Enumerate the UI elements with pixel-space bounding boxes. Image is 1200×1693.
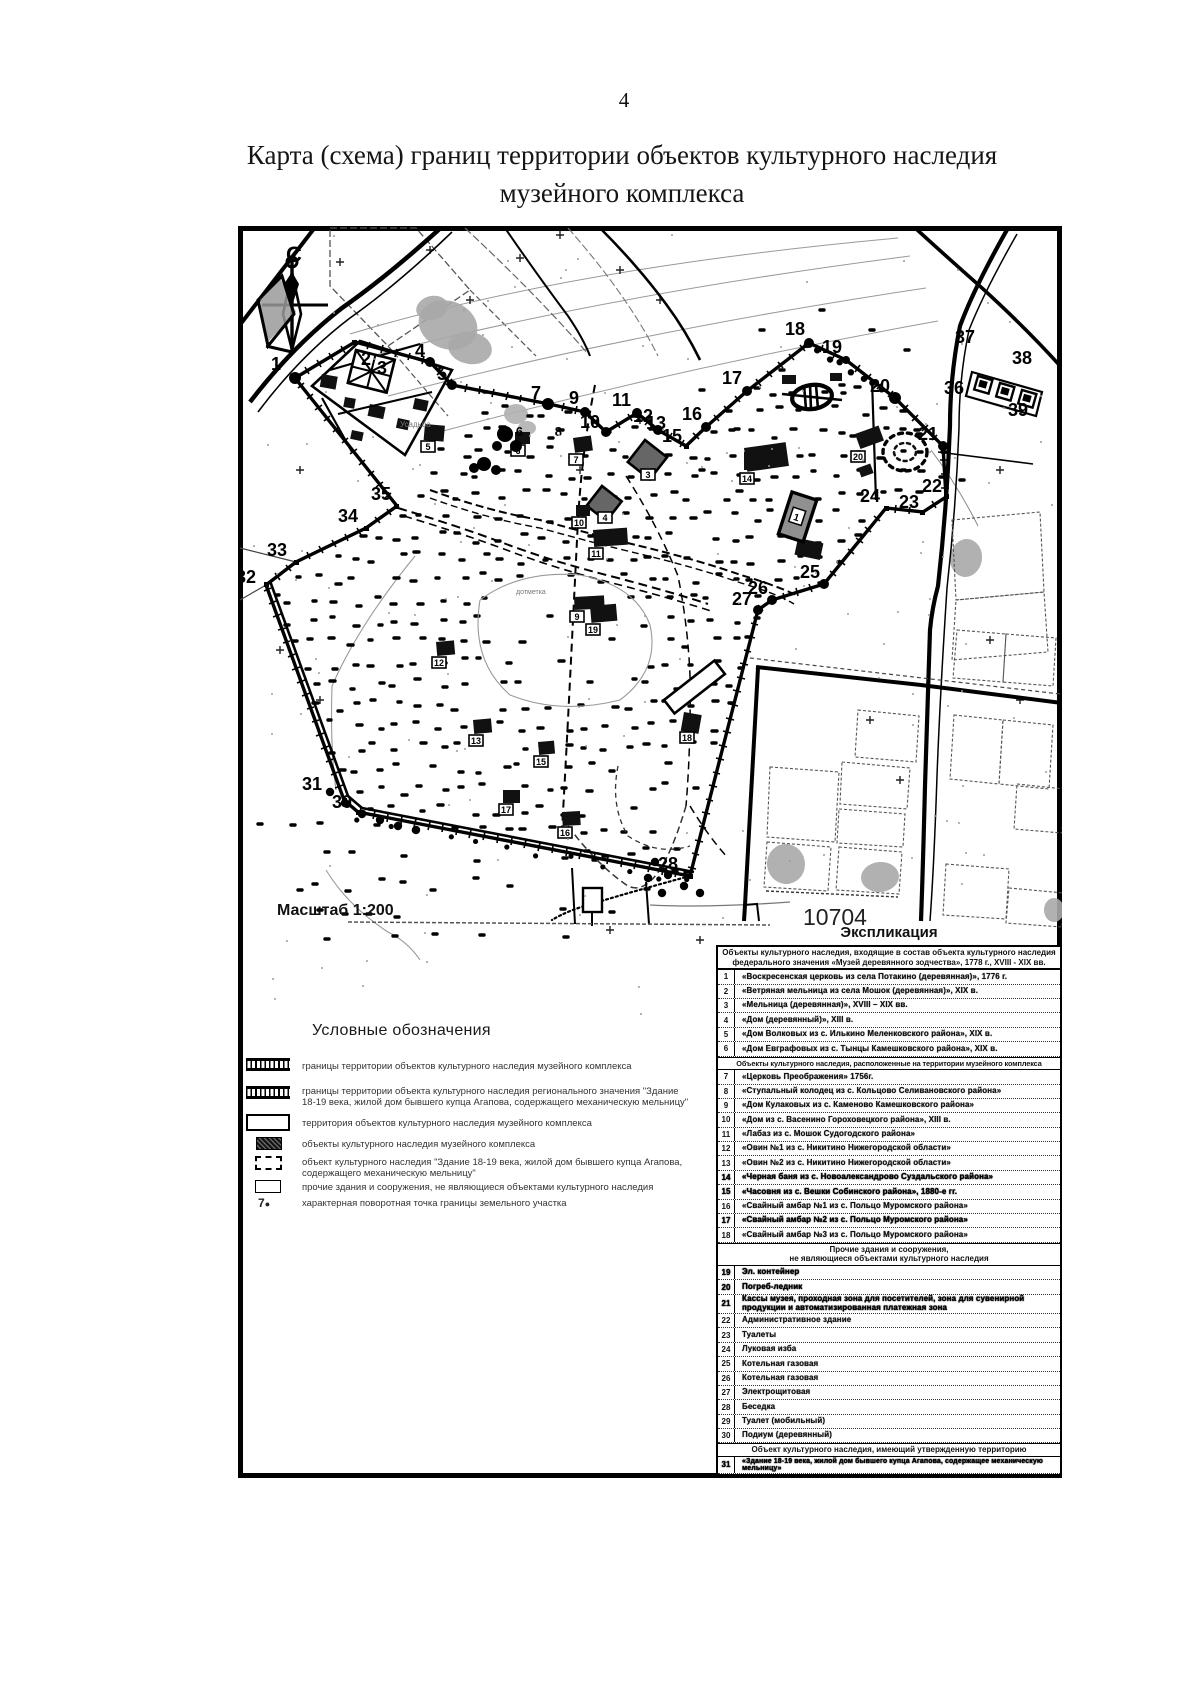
svg-text:16: 16 [560, 828, 570, 838]
svg-text:31: 31 [302, 774, 322, 794]
svg-text:28: 28 [658, 854, 678, 874]
svg-text:дотметка: дотметка [516, 589, 546, 596]
svg-text:16: 16 [682, 404, 702, 424]
svg-text:34: 34 [338, 506, 358, 526]
svg-text:35: 35 [371, 484, 391, 504]
svg-text:5: 5 [437, 364, 447, 384]
svg-text:1: 1 [271, 354, 281, 374]
svg-text:39: 39 [1008, 400, 1028, 420]
svg-text:25: 25 [800, 562, 820, 582]
svg-text:21: 21 [918, 424, 938, 444]
svg-text:32: 32 [238, 567, 256, 587]
svg-text:17: 17 [722, 368, 742, 388]
svg-text:4: 4 [602, 513, 607, 523]
svg-text:18: 18 [785, 319, 805, 339]
svg-text:5: 5 [425, 442, 430, 452]
svg-text:4: 4 [415, 341, 425, 361]
svg-text:19: 19 [822, 337, 842, 357]
svg-text:2: 2 [361, 349, 371, 369]
svg-text:3: 3 [645, 470, 650, 480]
svg-text:19: 19 [588, 625, 598, 635]
svg-text:10: 10 [580, 412, 600, 432]
svg-text:Масштаб 1:200: Масштаб 1:200 [277, 902, 394, 919]
svg-text:12: 12 [434, 658, 444, 668]
svg-text:9: 9 [574, 612, 579, 622]
svg-text:36: 36 [944, 378, 964, 398]
svg-text:18: 18 [682, 733, 692, 743]
svg-text:13: 13 [471, 736, 481, 746]
svg-text:Усадьба: Усадьба [400, 420, 431, 429]
svg-text:14: 14 [742, 474, 752, 484]
svg-text:17: 17 [501, 805, 511, 815]
svg-text:10: 10 [574, 518, 584, 528]
svg-text:23: 23 [899, 492, 919, 512]
svg-text:24: 24 [860, 486, 880, 506]
svg-text:15: 15 [662, 426, 682, 446]
svg-text:30: 30 [332, 792, 352, 812]
svg-text:22: 22 [922, 476, 942, 496]
svg-text:11: 11 [612, 390, 631, 410]
svg-text:20: 20 [853, 452, 863, 462]
svg-text:8: 8 [555, 424, 562, 439]
svg-text:6: 6 [516, 424, 523, 439]
svg-text:7: 7 [573, 455, 578, 465]
svg-text:11: 11 [591, 549, 601, 559]
svg-text:37: 37 [955, 327, 975, 347]
svg-text:3: 3 [377, 358, 387, 378]
svg-text:15: 15 [536, 757, 546, 767]
svg-text:27: 27 [732, 589, 752, 609]
svg-text:7: 7 [531, 383, 541, 403]
svg-text:33: 33 [267, 540, 287, 560]
svg-text:9: 9 [569, 388, 579, 408]
svg-text:38: 38 [1012, 348, 1032, 368]
svg-text:20: 20 [870, 376, 890, 396]
